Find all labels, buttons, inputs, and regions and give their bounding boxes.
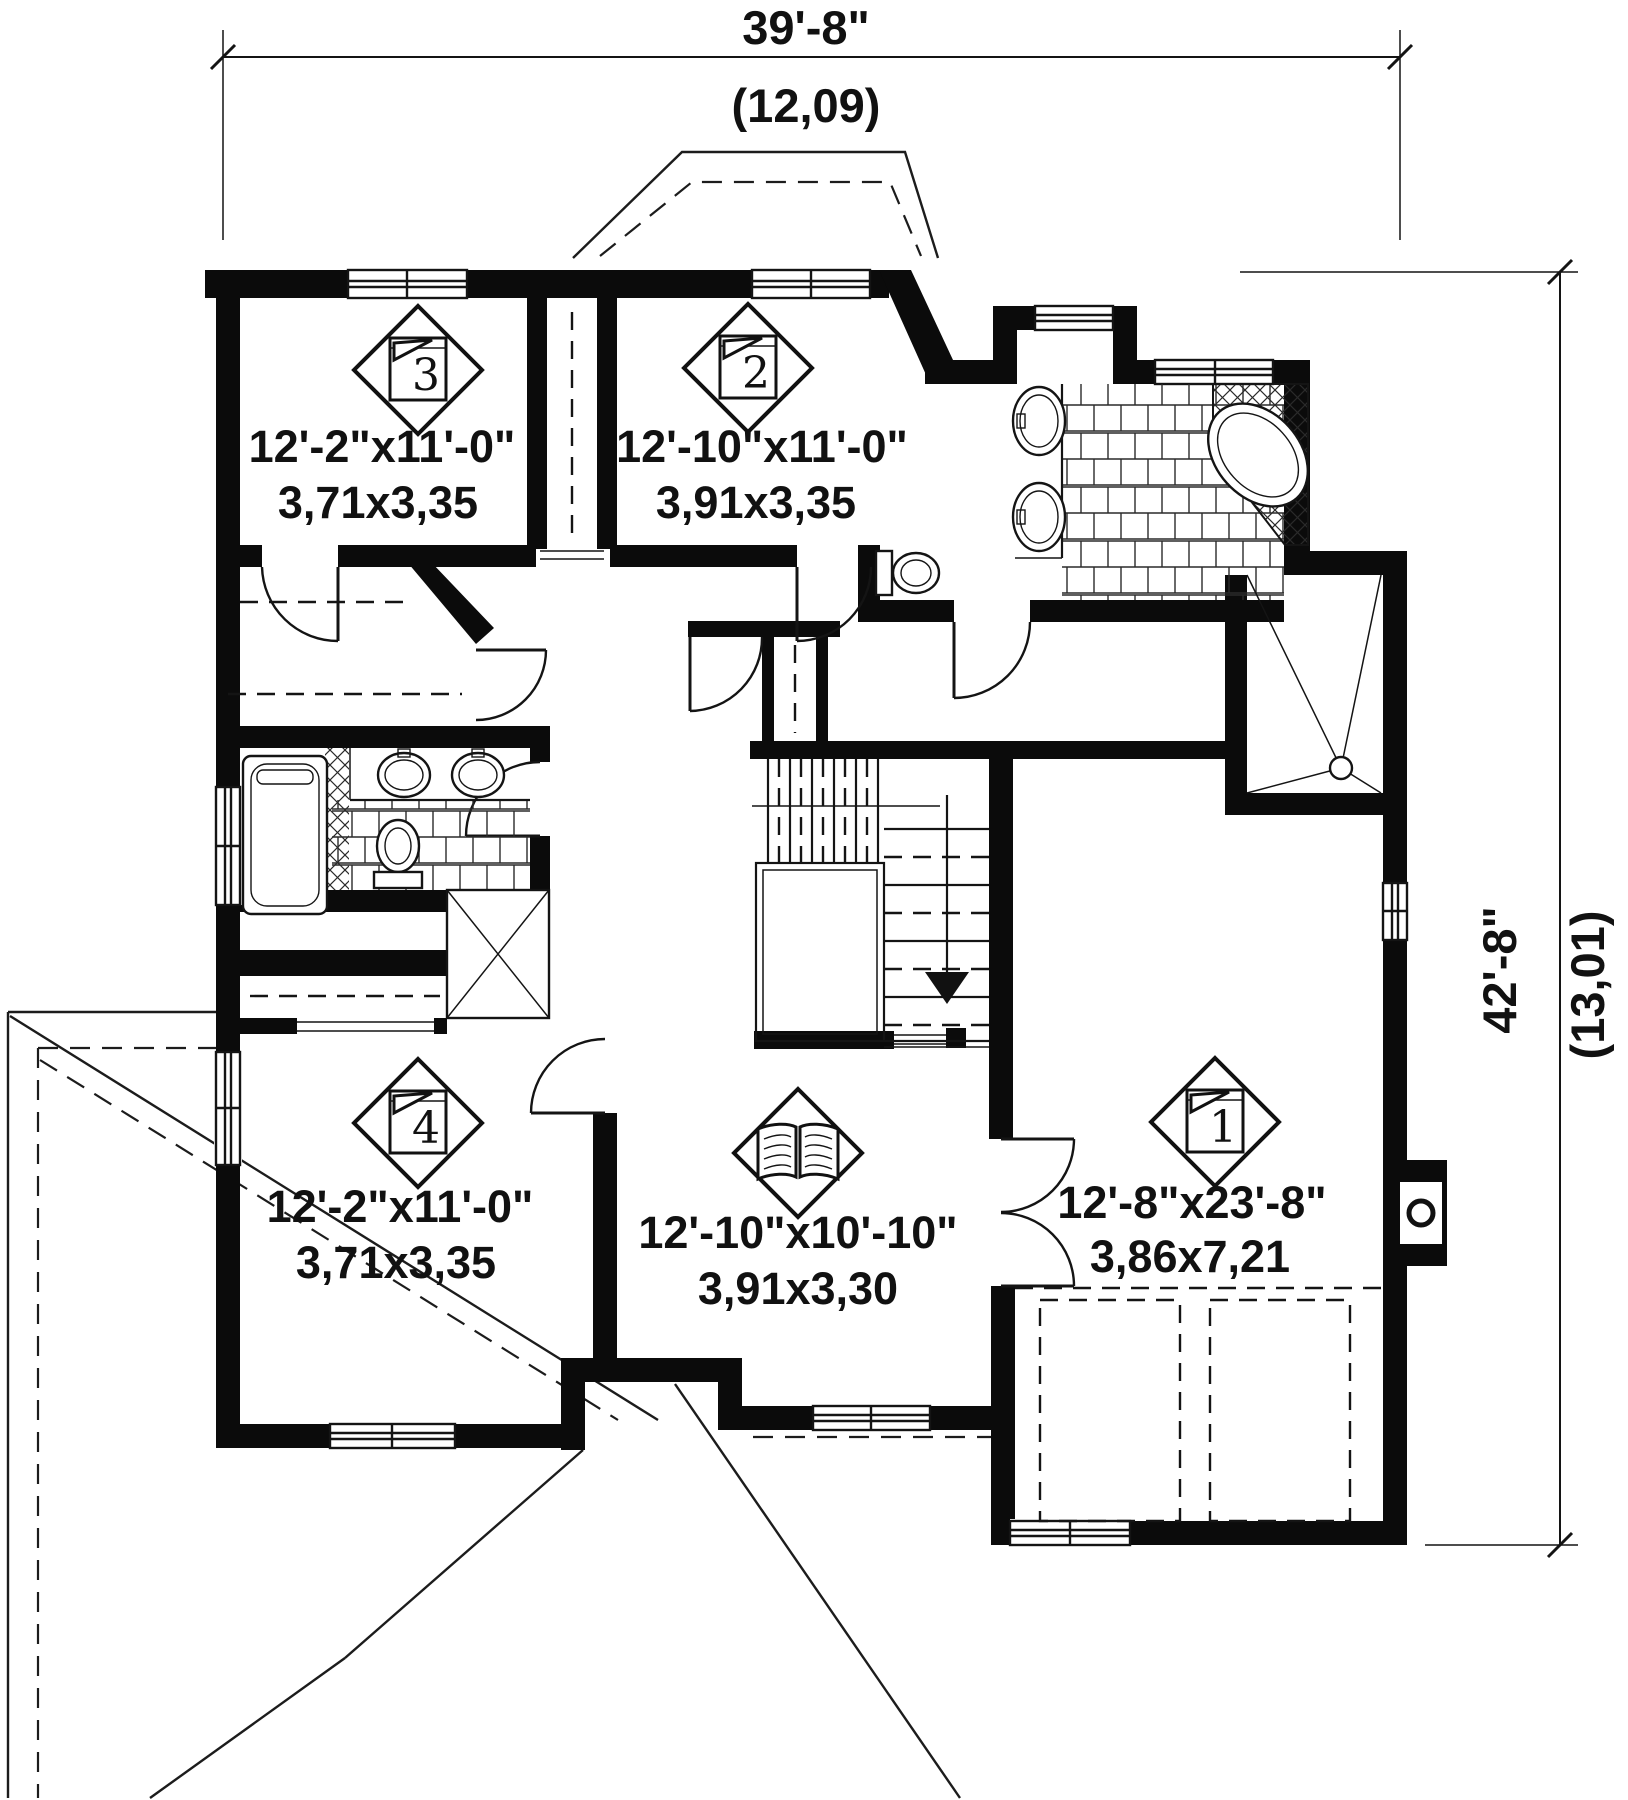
shower xyxy=(447,890,549,1018)
window xyxy=(1381,883,1409,940)
marker-number: 4 xyxy=(412,1103,440,1154)
marker-bedroom2: 2 xyxy=(684,304,812,432)
bedroom4-size-imperial: 12'-2"x11'-0" xyxy=(267,1181,534,1232)
bedroom1-size-metric: 3,86x7,21 xyxy=(1090,1231,1290,1282)
doors xyxy=(262,551,1074,1286)
bedroom3-size-imperial: 12'-2"x11'-0" xyxy=(249,421,516,472)
toilet xyxy=(374,820,422,888)
sink xyxy=(1013,483,1065,551)
bathroom-master xyxy=(876,384,1328,600)
sink xyxy=(452,749,504,797)
window xyxy=(752,268,870,300)
fireplace xyxy=(1383,1160,1447,1266)
door-hall-closet xyxy=(690,637,762,711)
door-bedroom3 xyxy=(262,567,338,641)
marker-bedroom3: 3 xyxy=(354,306,482,434)
window xyxy=(1010,1519,1130,1547)
bedroom4-size-metric: 3,71x3,35 xyxy=(296,1237,496,1288)
window xyxy=(214,1052,242,1165)
bedroom1-size-imperial: 12'-8"x23'-8" xyxy=(1057,1177,1326,1228)
top-dimension-metric: (12,09) xyxy=(732,79,881,132)
marker-number: 1 xyxy=(1209,1102,1237,1153)
bathtub xyxy=(243,756,327,914)
floor-plan-drawing: 3 2 4 xyxy=(0,0,1628,1800)
sink xyxy=(1013,387,1065,455)
window xyxy=(813,1404,930,1432)
window xyxy=(1155,358,1273,386)
bathroom-left xyxy=(243,748,549,1018)
right-dimension-imperial: 42'-8" xyxy=(1473,906,1526,1034)
bedroom2-size-metric: 3,91x3,35 xyxy=(656,477,856,528)
window xyxy=(214,787,242,905)
right-dimension-metric: (13,01) xyxy=(1561,911,1614,1060)
study-size-metric: 3,91x3,30 xyxy=(698,1263,898,1314)
top-dimension-imperial: 39'-8" xyxy=(742,1,870,54)
study-size-imperial: 12'-10"x10'-10" xyxy=(638,1207,957,1258)
door-bedroom4 xyxy=(531,1039,605,1113)
window xyxy=(1035,304,1113,332)
toilet xyxy=(876,551,939,595)
marker-number: 2 xyxy=(742,348,770,399)
down-arrow xyxy=(925,795,969,1004)
stair-treads-upper xyxy=(768,759,878,863)
marker-bedroom4: 4 xyxy=(354,1059,482,1187)
stairwell-void xyxy=(756,863,884,1041)
stair-treads-lower xyxy=(884,829,989,1047)
marker-study xyxy=(734,1089,862,1217)
stairs xyxy=(752,759,989,1047)
floor-plan-page: 3 2 4 xyxy=(0,0,1628,1800)
marker-number: 3 xyxy=(412,350,440,401)
bedroom3-size-metric: 3,71x3,35 xyxy=(278,477,478,528)
window xyxy=(330,1422,455,1450)
window xyxy=(348,268,467,300)
door-master-bath xyxy=(954,622,1030,698)
door-wic xyxy=(476,650,546,720)
bedroom2-size-imperial: 12'-10"x11'-0" xyxy=(616,421,908,472)
marker-bedroom1: 1 xyxy=(1151,1058,1279,1186)
sink xyxy=(378,749,430,797)
